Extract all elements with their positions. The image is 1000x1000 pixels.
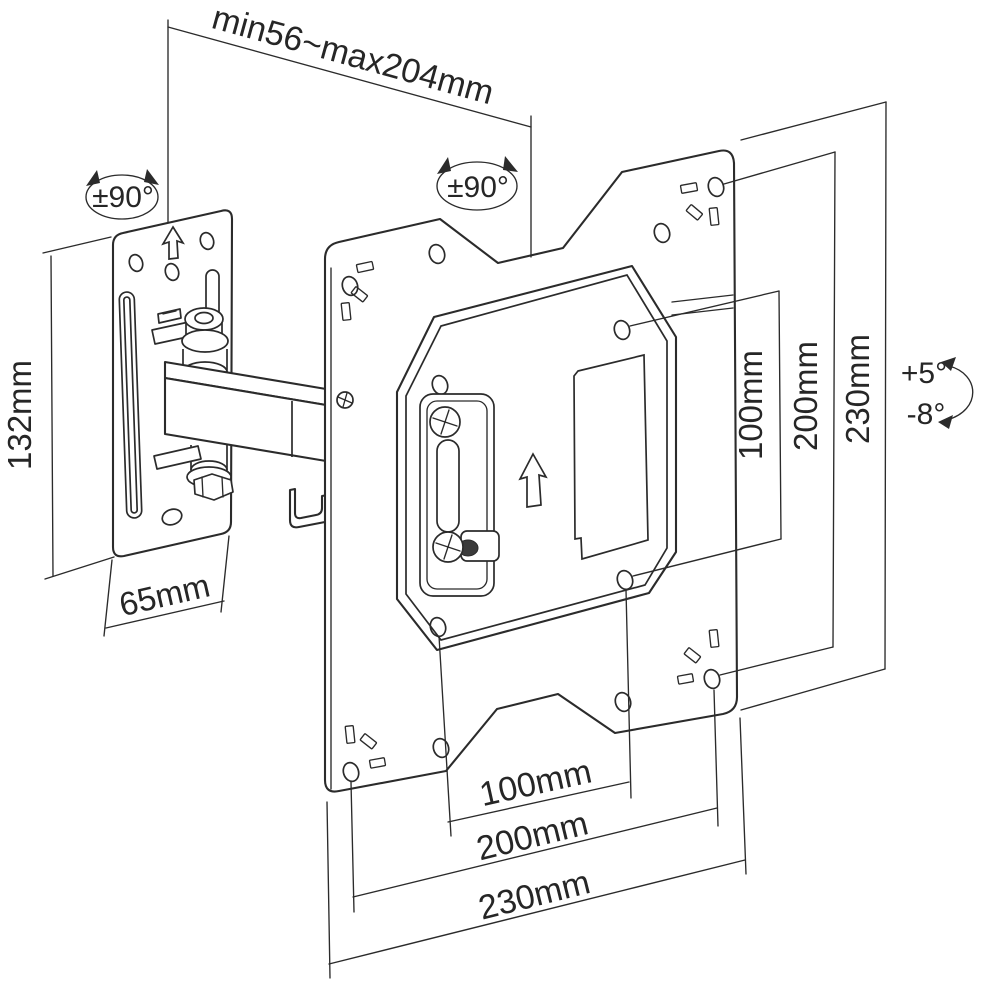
tilt-annotation: +5° -8° bbox=[901, 357, 973, 431]
extension-line bbox=[104, 560, 112, 636]
dimension-label: 100mm bbox=[732, 350, 769, 460]
dimension-label: min56~max204mm bbox=[208, 0, 498, 112]
dimension-label: 132mm bbox=[1, 360, 38, 470]
leader-line bbox=[741, 669, 885, 710]
latch-slide-slot bbox=[437, 440, 459, 532]
swivel-label: ±90° bbox=[92, 181, 154, 214]
extension-line bbox=[43, 237, 111, 253]
rotation-arrowhead bbox=[503, 156, 518, 172]
swivel-label: ±90° bbox=[447, 171, 509, 204]
dimension-label: 230mm bbox=[475, 863, 594, 927]
swivel-annotation-wall-plate: ±90° bbox=[86, 169, 159, 219]
dimension-line bbox=[779, 291, 781, 539]
bolt-flange bbox=[182, 330, 228, 352]
extension-line bbox=[740, 718, 746, 874]
extension-line bbox=[45, 557, 114, 579]
wall-mount-diagram: min56~max204mm 132mm 65mm 100mm 200mm 23… bbox=[0, 0, 1000, 1000]
leader-line bbox=[724, 152, 835, 184]
extension-line bbox=[221, 536, 229, 612]
dimension-label: 230mm bbox=[839, 334, 876, 444]
extension-line bbox=[351, 782, 354, 912]
tilt-down-label: -8° bbox=[907, 398, 946, 431]
dimension-label: 200mm bbox=[787, 341, 824, 451]
technical-drawing-canvas: min56~max204mm 132mm 65mm 100mm 200mm 23… bbox=[0, 0, 1000, 1000]
dimension-line bbox=[885, 102, 886, 669]
dimension-line bbox=[51, 256, 53, 576]
leader-line bbox=[741, 102, 886, 140]
tilt-up-label: +5° bbox=[901, 357, 947, 390]
bolt-head bbox=[185, 308, 223, 330]
swivel-annotation-vesa-plate: ±90° bbox=[437, 156, 518, 210]
dimension-label: 200mm bbox=[473, 804, 592, 868]
dimension-line bbox=[833, 152, 835, 647]
tilt-arc bbox=[947, 366, 973, 420]
monitor-adapter-plate bbox=[397, 266, 676, 650]
extension-line bbox=[327, 802, 330, 978]
dimension-left-height: 132mm bbox=[1, 237, 114, 579]
